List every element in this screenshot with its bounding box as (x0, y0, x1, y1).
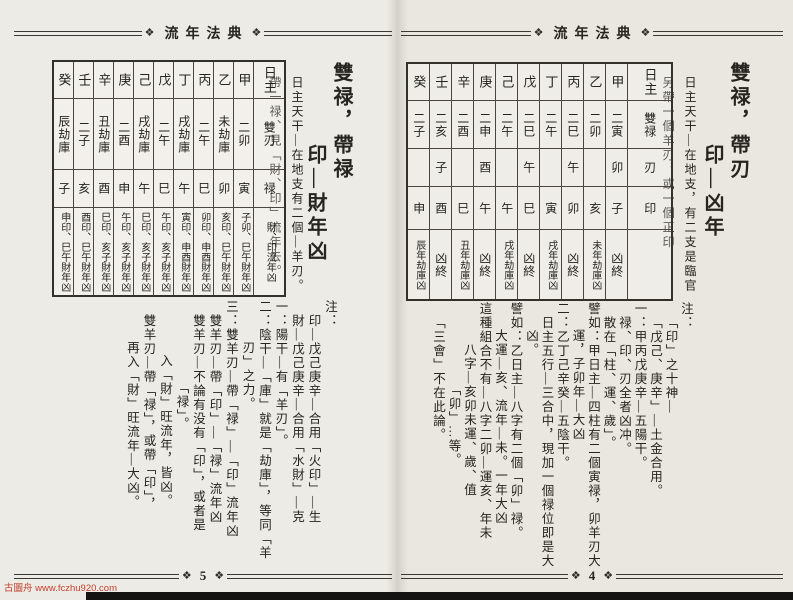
header-rule-left (14, 31, 142, 36)
vertical-text-line: 「印」之十神— (662, 302, 678, 576)
table-stem-column: 乙未劫庫卯亥印、巳午財年凶 (214, 62, 234, 295)
table-stem-column: 丁二午寅戌年劫庫凶 (540, 64, 562, 299)
vertical-text-line: 二：陰干—「庫」就是「劫庫」，等同「羊 (256, 300, 273, 572)
table-cell: 酉 (430, 187, 451, 230)
table-cell (628, 230, 671, 299)
table-header-column: 日主雙禄刃印 (628, 64, 671, 299)
table-cell: 午 (174, 170, 193, 208)
table-cell: 丑劫庫 (94, 99, 113, 170)
vertical-text-line: 入「財」旺流年，皆凶。 (157, 300, 174, 572)
stem-header-cell: 乙 (584, 64, 605, 101)
table-stem-column: 庚二申酉午凶終 (474, 64, 496, 299)
table-stem-column: 辛二酉巳丑年劫庫凶 (452, 64, 474, 299)
knot-ornament-icon: ❖ (252, 28, 262, 39)
table-cell: 戌年劫庫凶 (496, 230, 517, 299)
vertical-text-line: 八字—亥卯未運、歲、值 (461, 302, 477, 576)
vertical-text-line: 印—戊己庚辛—合用「火印」—生 (305, 300, 322, 572)
vertical-text-line: 三：雙羊刃—帶「禄」—「印」流年凶 (223, 300, 240, 572)
double-lu-table: 癸二子申辰年劫庫凶壬二亥子酉凶終辛二酉巳丑年劫庫凶庚二申酉午凶終己二午午戌年劫庫… (406, 62, 673, 301)
vertical-text-line: 「戊己、庚辛」—土金合用。 (647, 302, 663, 576)
knot-ornament-icon: ❖ (603, 571, 613, 582)
table-cell: 辰劫庫 (54, 99, 73, 170)
book-title: 流年法典 (547, 23, 638, 43)
table-stem-column: 丙二巳午卯凶終 (562, 64, 584, 299)
vertical-text-line: 「三會」不在此論。 (430, 302, 446, 576)
page-number: 4 (589, 568, 596, 584)
page-footer: ❖ 4 ❖ (401, 567, 783, 585)
table-cell: 寅印、申酉財年凶 (174, 208, 193, 295)
table-stem-column: 甲二卯寅子卯、巳午財年凶 (234, 62, 254, 295)
footer-rule-right (227, 574, 392, 579)
table-stem-column: 己二午午戌年劫庫凶 (496, 64, 518, 299)
table-cell: 辰年劫庫凶 (408, 230, 429, 299)
table-cell: 卯 (606, 149, 627, 187)
stem-header-cell: 丙 (194, 62, 213, 99)
table-stem-column: 戊二午巳午印、亥子財年凶 (154, 62, 174, 295)
table-cell: 二午 (194, 99, 213, 170)
notes-text: 注：印—戊己庚辛—合用「火印」—生財—戊己庚辛—合用「水財」—克一：陽干—有「羊… (124, 300, 339, 572)
table-header-column: 日主雙刃禄財、印流年凶 (254, 62, 284, 295)
double-blade-table: 癸辰劫庫子申印、巳午財年凶壬二子亥酉印、巳午財年凶辛丑劫庫酉巳印、亥子財年凶庚二… (52, 60, 286, 297)
knot-ornament-icon: ❖ (145, 28, 155, 39)
stem-header-cell: 癸 (408, 64, 429, 101)
header-rule-left (401, 31, 531, 36)
table-cell: 酉 (94, 170, 113, 208)
vertical-text-line: 日主天干—在地支，有二支是臨官 (679, 76, 701, 316)
table-stem-column: 庚二酉申午印、亥子財年凶 (114, 62, 134, 295)
vertical-text-line: 大運—亥、流年—未。一年大凶 (492, 302, 508, 576)
table-cell: 二巳 (562, 101, 583, 149)
table-cell: 巳 (154, 170, 173, 208)
table-cell: 財、印流年凶 (254, 208, 284, 295)
section-headline: 雙禄，帶禄 印—財年凶 (302, 62, 354, 264)
table-cell: 二午 (540, 101, 561, 149)
header-rule-right (653, 31, 783, 36)
book-page-left: ❖ 流年法典 ❖ 雙禄，帶禄 印—財年凶 日主天干—在地支有二個—羊刃。帶一禄、… (0, 0, 396, 600)
table-cell (584, 149, 605, 187)
vertical-text-line: 一：甲丙戊庚辛—五陽干。 (631, 302, 647, 576)
table-cell: 二酉 (114, 99, 133, 170)
stem-header-cell: 己 (134, 62, 153, 99)
table-cell: 印 (628, 187, 671, 230)
table-cell: 午印、亥子財年凶 (154, 208, 173, 295)
vertical-text-line: 凶。 (523, 302, 539, 576)
stem-header-cell: 日主 (254, 62, 284, 99)
page-number: 5 (200, 568, 207, 584)
table-cell: 申印、巳午財年凶 (54, 208, 73, 295)
table-cell: 巳 (452, 187, 473, 230)
table-stem-column: 壬二子亥酉印、巳午財年凶 (74, 62, 94, 295)
table-cell: 巳印、亥子財年凶 (134, 208, 153, 295)
table-cell: 凶終 (562, 230, 583, 299)
table-cell: 卯印、申酉財年凶 (194, 208, 213, 295)
notes-text: 注：「印」之十神—「戊己、庚辛」—土金合用。一：甲丙戊庚辛—五陽干。禄、印、刃全… (430, 302, 694, 576)
table-cell: 禄 (254, 170, 284, 208)
knot-ornament-icon: ❖ (534, 28, 544, 39)
table-stem-column: 癸辰劫庫子申印、巳午財年凶 (54, 62, 74, 295)
vertical-text-line: 「卯」…等。 (445, 302, 461, 576)
stem-header-cell: 庚 (114, 62, 133, 99)
table-stem-column: 乙二卯亥未年劫庫凶 (584, 64, 606, 299)
table-cell: 凶終 (474, 230, 495, 299)
table-stem-column: 丙二午巳卯印、申酉財年凶 (194, 62, 214, 295)
table-stem-column: 丁戌劫庫午寅印、申酉財年凶 (174, 62, 194, 295)
table-cell: 戌劫庫 (134, 99, 153, 170)
vertical-text-line: 注： (678, 302, 694, 576)
table-stem-column: 戊二巳午巳凶終 (518, 64, 540, 299)
table-cell: 子卯、巳午財年凶 (234, 208, 253, 295)
stem-header-cell: 甲 (234, 62, 253, 99)
table-cell (408, 149, 429, 187)
book-scan: { "ornament": "❖", "watermark": "古圖舟 www… (0, 0, 793, 600)
stem-header-cell: 壬 (430, 64, 451, 101)
table-cell: 未劫庫 (214, 99, 233, 170)
vertical-text-line: 散在「柱、運、歲」。 (600, 302, 616, 576)
section-headline: 雙禄，帶刃 印—凶年 (699, 62, 751, 240)
stem-header-cell: 庚 (474, 64, 495, 101)
table-cell: 卯 (214, 170, 233, 208)
stem-header-cell: 乙 (214, 62, 233, 99)
stem-header-cell: 丁 (540, 64, 561, 101)
table-cell: 亥 (74, 170, 93, 208)
table-cell: 子 (430, 149, 451, 187)
table-cell (540, 149, 561, 187)
stem-header-cell: 己 (496, 64, 517, 101)
table-cell: 二寅 (606, 101, 627, 149)
vertical-text-line: 二：乙丁己辛癸—五陰干。 (554, 302, 570, 576)
table-stem-column: 辛丑劫庫酉巳印、亥子財年凶 (94, 62, 114, 295)
vertical-text-line: 再入「財」旺流年—大凶。 (124, 300, 141, 572)
stem-header-cell: 丁 (174, 62, 193, 99)
table-cell: 寅 (540, 187, 561, 230)
table-cell: 午印、亥子財年凶 (114, 208, 133, 295)
table-cell: 戌年劫庫凶 (540, 230, 561, 299)
table-cell: 凶終 (606, 230, 627, 299)
table-stem-column: 己戌劫庫午巳印、亥子財年凶 (134, 62, 154, 295)
footer-rule-right (616, 574, 783, 579)
table-cell: 二巳 (518, 101, 539, 149)
vertical-text-line: 「禄」。 (173, 300, 190, 572)
table-cell: 巳 (194, 170, 213, 208)
vertical-text-line: 禄、印、刃全者凶冲。 (616, 302, 632, 576)
table-cell: 丑年劫庫凶 (452, 230, 473, 299)
table-cell: 未年劫庫凶 (584, 230, 605, 299)
table-cell: 午 (134, 170, 153, 208)
table-cell: 二午 (496, 101, 517, 149)
table-cell: 雙刃 (254, 99, 284, 170)
table-cell: 午 (474, 187, 495, 230)
book-page-right: ❖ 流年法典 ❖ 雙禄，帶刃 印—凶年 日主天干—在地支，有二支是臨官另帶一個羊… (397, 0, 793, 600)
stem-header-cell: 癸 (54, 62, 73, 99)
table-cell: 卯 (562, 187, 583, 230)
table-cell: 凶終 (518, 230, 539, 299)
table-cell: 亥 (584, 187, 605, 230)
vertical-text-line: 一：陽干—有「羊刃」。 (272, 300, 289, 572)
knot-ornament-icon: ❖ (214, 571, 224, 582)
table-cell: 雙禄 (628, 101, 671, 149)
table-cell: 寅 (234, 170, 253, 208)
table-cell: 亥印、巳午財年凶 (214, 208, 233, 295)
table-cell: 二子 (408, 101, 429, 149)
stem-header-cell: 壬 (74, 62, 93, 99)
vertical-text-line: 譬如：乙日主—八字有二個「卯」禄。 (507, 302, 523, 576)
table-cell: 子 (606, 187, 627, 230)
scan-edge-artifact (86, 592, 793, 600)
header-rule-right (264, 31, 392, 36)
stem-header-cell: 辛 (452, 64, 473, 101)
stem-header-cell: 日主 (628, 64, 671, 101)
page-header: ❖ 流年法典 ❖ (401, 24, 783, 42)
headline-main: 雙禄，帶刃 (725, 62, 751, 240)
table-cell: 申 (114, 170, 133, 208)
table-cell: 子 (54, 170, 73, 208)
book-title: 流年法典 (158, 23, 249, 43)
table-stem-column: 壬二亥子酉凶終 (430, 64, 452, 299)
table-cell: 二卯 (234, 99, 253, 170)
vertical-text-line: 日主五行—三合中，現加一個禄位即是大 (538, 302, 554, 576)
knot-ornament-icon: ❖ (182, 571, 192, 582)
vertical-text-line: 運，子卯年—大凶 (569, 302, 585, 576)
table-cell: 午 (496, 187, 517, 230)
table-cell: 午 (562, 149, 583, 187)
vertical-text-line: 譬如：甲日主—四柱有二個寅禄，卯羊刃大 (585, 302, 601, 576)
vertical-text-line: 雙羊刃—不論有没有「印」，或者是 (190, 300, 207, 572)
table-cell: 申 (408, 187, 429, 230)
table-cell: 巳 (518, 187, 539, 230)
table-cell: 二酉 (452, 101, 473, 149)
table-cell: 酉 (474, 149, 495, 187)
vertical-text-line: 雙羊刃—帶「印」—「禄」流年凶 (206, 300, 223, 572)
table-cell (496, 149, 517, 187)
headline-main: 雙禄，帶禄 (328, 62, 354, 264)
table-cell: 戌劫庫 (174, 99, 193, 170)
stem-header-cell: 辛 (94, 62, 113, 99)
table-cell: 二子 (74, 99, 93, 170)
stem-header-cell: 丙 (562, 64, 583, 101)
vertical-text-line: 財—戊己庚辛—合用「水財」—克 (289, 300, 306, 572)
table-cell: 二午 (154, 99, 173, 170)
vertical-text-line: 這種組合不有—八字二卯—運亥、年未 (476, 302, 492, 576)
table-cell: 午 (518, 149, 539, 187)
table-cell: 二亥 (430, 101, 451, 149)
vertical-text-line: 日主天干—在地支有二個—羊刃。 (286, 76, 308, 311)
table-cell: 二卯 (584, 101, 605, 149)
vertical-text-line: 刃」之力。 (239, 300, 256, 572)
footer-rule-left (14, 574, 179, 579)
stem-header-cell: 戊 (154, 62, 173, 99)
footer-rule-left (401, 574, 568, 579)
knot-ornament-icon: ❖ (641, 28, 651, 39)
stem-header-cell: 戊 (518, 64, 539, 101)
page-header: ❖ 流年法典 ❖ (14, 24, 392, 42)
vertical-text-line: 雙羊刃—帶「禄」，或帶「印」， (140, 300, 157, 572)
table-cell: 凶終 (430, 230, 451, 299)
table-cell: 二申 (474, 101, 495, 149)
headline-sub: 印—凶年 (699, 62, 725, 240)
table-stem-column: 甲二寅卯子凶終 (606, 64, 628, 299)
knot-ornament-icon: ❖ (571, 571, 581, 582)
table-cell (452, 149, 473, 187)
table-cell: 巳印、亥子財年凶 (94, 208, 113, 295)
vertical-text-line: 注： (322, 300, 339, 572)
table-stem-column: 癸二子申辰年劫庫凶 (408, 64, 430, 299)
table-cell: 酉印、巳午財年凶 (74, 208, 93, 295)
table-cell: 刃 (628, 149, 671, 187)
stem-header-cell: 甲 (606, 64, 627, 101)
